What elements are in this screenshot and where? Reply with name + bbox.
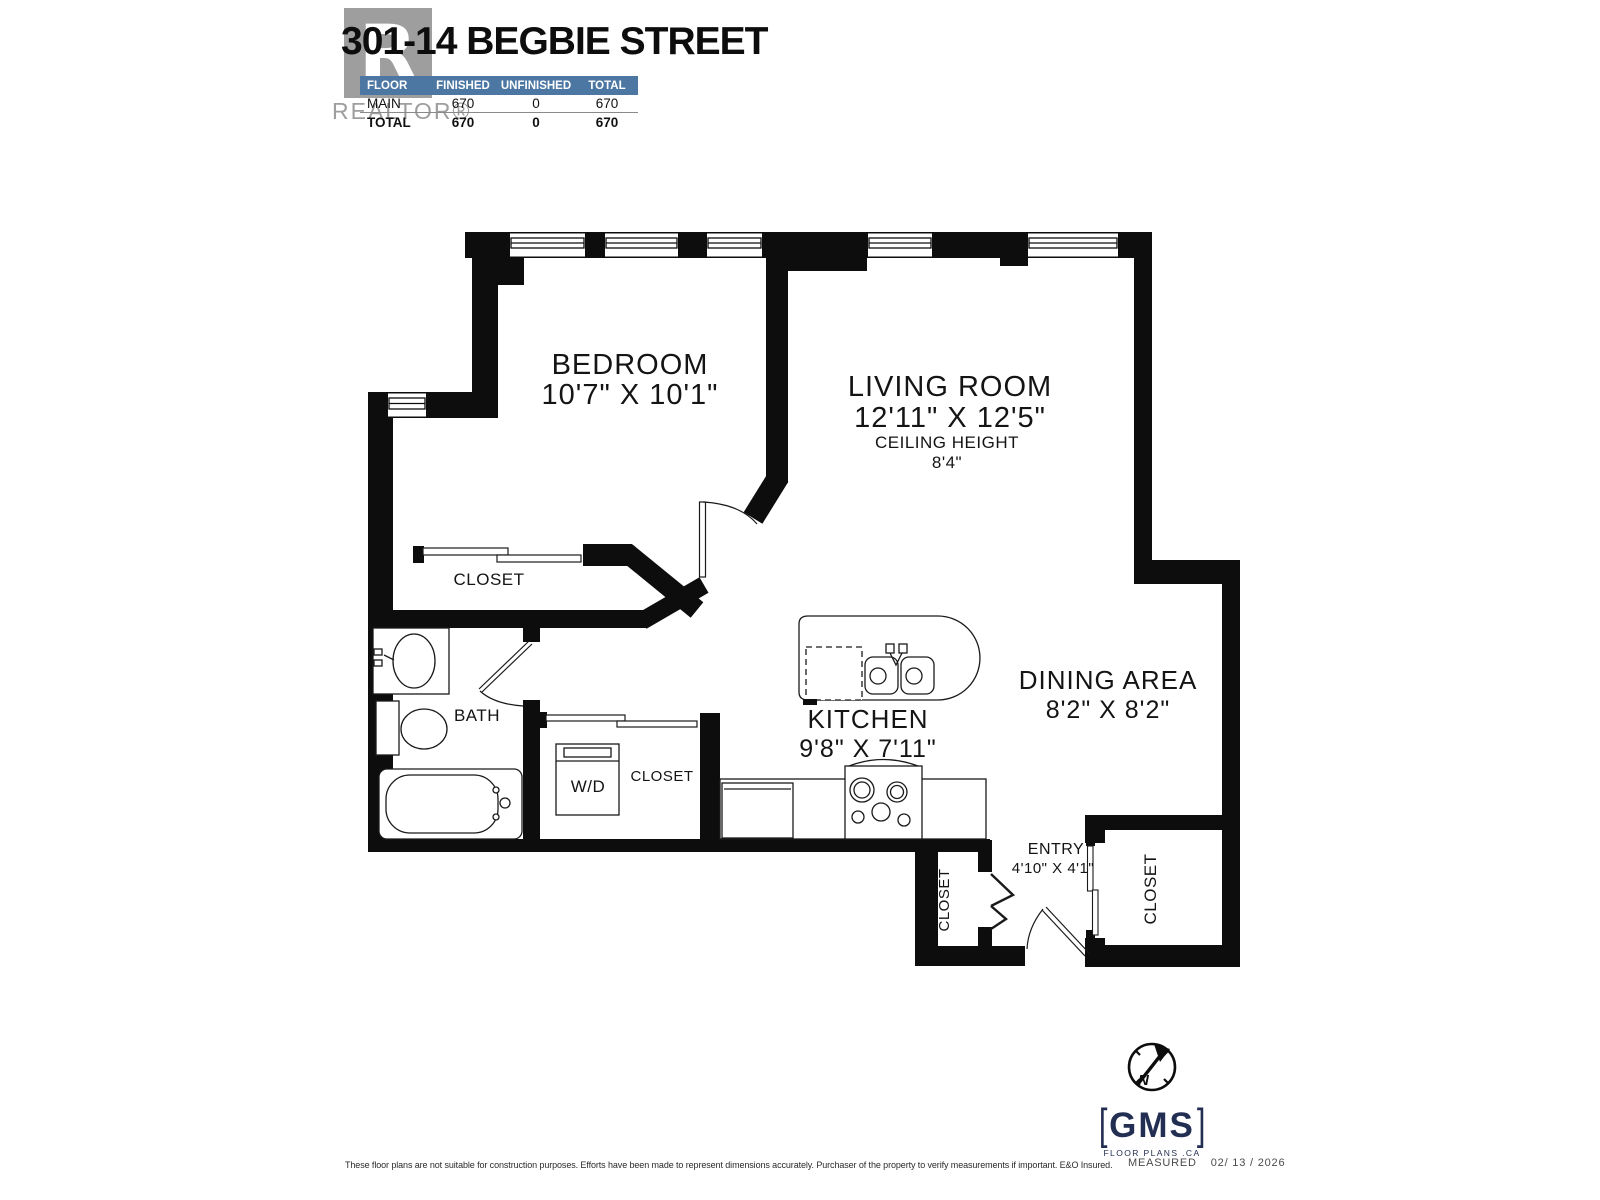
total-floor-label: TOTAL xyxy=(360,115,430,130)
entry-label: ENTRY xyxy=(1028,841,1084,858)
measured-date: MEASURED02/ 13 / 2026 xyxy=(1128,1157,1285,1169)
stove xyxy=(845,760,922,840)
hall-closet-label: CLOSET xyxy=(630,768,693,785)
total-total: 670 xyxy=(576,115,638,130)
measured-value: 02/ 13 / 2026 xyxy=(1211,1157,1286,1169)
bathroom-vanity xyxy=(373,628,449,694)
compass-n-letter: N xyxy=(1138,1072,1150,1089)
kitchen-island xyxy=(799,616,980,705)
total-unfinished: 0 xyxy=(496,115,576,130)
entry-closet-right-label: CLOSET xyxy=(1141,853,1160,924)
area-summary-table: FLOOR FINISHED UNFINISHED TOTAL MAIN 670… xyxy=(360,76,638,130)
disclaimer-text: These floor plans are not suitable for c… xyxy=(345,1160,1112,1170)
compass-icon: N xyxy=(1094,1036,1210,1098)
main-floor-label: MAIN xyxy=(360,96,430,111)
entry-dims: 4'10" X 4'1" xyxy=(1012,860,1094,877)
toilet xyxy=(376,701,447,755)
area-table-header: FLOOR FINISHED UNFINISHED TOTAL xyxy=(360,76,638,95)
gms-bracket-right: ] xyxy=(1197,1103,1206,1147)
kitchen-label: KITCHEN xyxy=(807,704,928,734)
sink-faucet xyxy=(886,644,894,653)
ceiling-height-label: CEILING HEIGHT xyxy=(875,433,1019,452)
measured-label: MEASURED xyxy=(1128,1157,1197,1169)
bathtub xyxy=(379,769,522,839)
col-total: TOTAL xyxy=(576,80,638,92)
dining-area-label: DINING AREA xyxy=(1019,665,1198,695)
refrigerator xyxy=(722,783,793,838)
gms-name-row: [ GMS ] xyxy=(1094,1103,1210,1147)
bedroom-closet-label: CLOSET xyxy=(453,570,524,589)
table-row: TOTAL 670 0 670 xyxy=(360,114,638,130)
page-title: 301-14 BEGBIE STREET xyxy=(341,20,767,64)
bath-door xyxy=(479,641,532,706)
living-room-dims: 12'11" X 12'5" xyxy=(854,402,1046,434)
main-finished: 670 xyxy=(430,96,496,111)
entry-closet-right-sliding-door xyxy=(1086,838,1098,938)
total-finished: 670 xyxy=(430,115,496,130)
main-total: 670 xyxy=(576,96,638,111)
ceiling-height-value: 8'4" xyxy=(932,453,962,472)
entry-door xyxy=(1027,907,1089,956)
bath-label: BATH xyxy=(454,706,500,725)
living-room-label: LIVING ROOM xyxy=(848,371,1052,403)
table-row: MAIN 670 0 670 xyxy=(360,95,638,111)
laundry-closet-sliding-door xyxy=(537,712,697,728)
col-unfinished: UNFINISHED xyxy=(496,80,576,92)
washer-dryer-label: W/D xyxy=(571,777,606,796)
kitchen-dims: 9'8" X 7'11" xyxy=(799,735,937,763)
gms-name: GMS xyxy=(1109,1108,1195,1143)
dining-area-dims: 8'2" X 8'2" xyxy=(1046,696,1170,724)
gms-logo: N [ GMS ] FLOOR PLANS .CA xyxy=(1094,1036,1210,1158)
gms-bracket-left: [ xyxy=(1099,1103,1108,1147)
col-floor: FLOOR xyxy=(360,80,430,92)
exterior-walls xyxy=(368,232,1240,967)
bedroom-closet-sliding-door xyxy=(413,546,581,563)
bedroom-dims: 10'7" X 10'1" xyxy=(542,379,719,411)
col-finished: FINISHED xyxy=(430,80,496,92)
floor-plan-drawing: BEDROOM 10'7" X 10'1" LIVING ROOM 12'11"… xyxy=(0,0,1600,1200)
bedroom-label: BEDROOM xyxy=(552,349,709,381)
entry-closet-left-label: CLOSET xyxy=(936,868,953,931)
main-unfinished: 0 xyxy=(496,96,576,111)
entry-closet-bifold-door xyxy=(991,874,1013,929)
table-divider xyxy=(360,112,638,113)
floor-plan-page: R REALTOR® 301-14 BEGBIE STREET FLOOR FI… xyxy=(0,0,1600,1200)
dishwasher xyxy=(806,647,862,700)
